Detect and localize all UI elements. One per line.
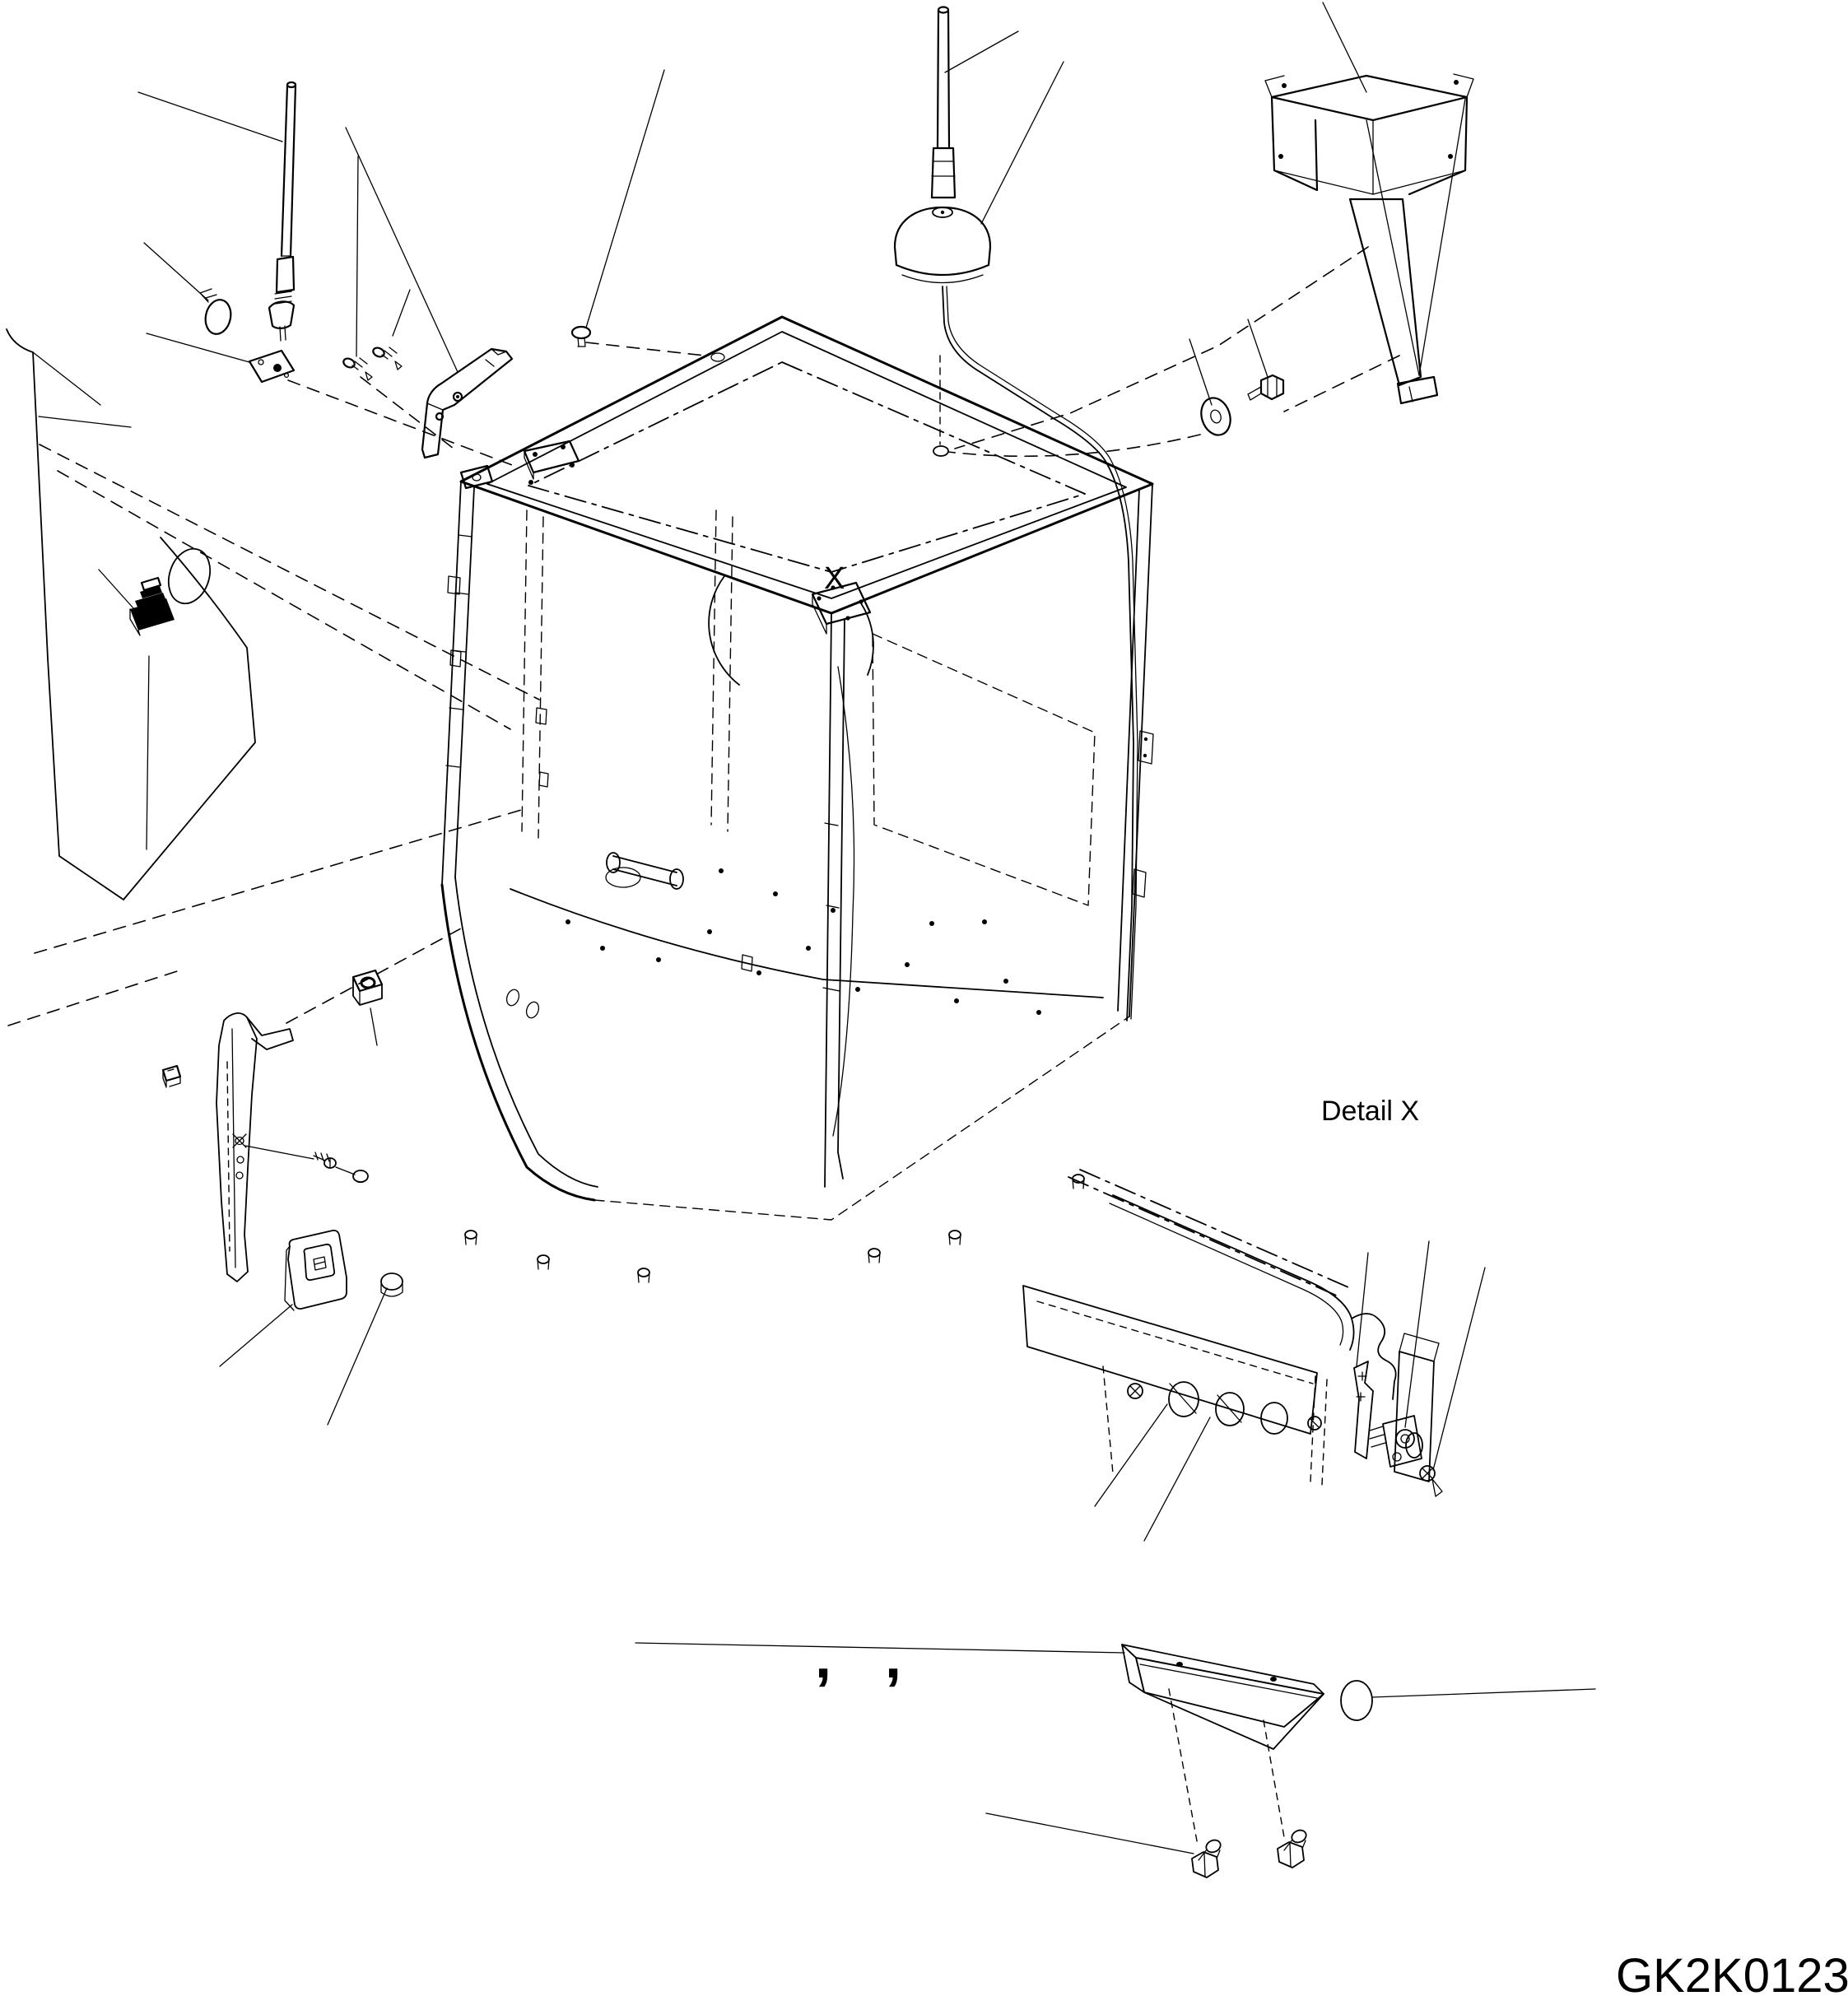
hex-bolt-icon	[1278, 1828, 1308, 1868]
headliner-panel-icon	[7, 329, 539, 900]
separator-comma: ,	[815, 1625, 831, 1691]
parts-diagram-page: X	[0, 0, 1848, 1996]
antenna-cable	[943, 286, 1138, 1021]
tapping-screw-icon	[342, 347, 402, 380]
lamp-bracket-icon	[1354, 1253, 1373, 1459]
whip-antenna-assembly-icon	[138, 70, 705, 468]
cab-frame-drawing: X	[442, 317, 1153, 1282]
armrest-cover-icon	[1122, 1645, 1324, 1749]
harness-connector-icon	[130, 578, 175, 635]
antenna-mount-plate-icon	[249, 351, 294, 382]
buzzer-box-icon	[353, 970, 382, 1045]
parts-diagram-canvas: X	[0, 0, 1848, 1996]
detail-x-marker: X	[824, 561, 845, 596]
hex-bolt-icon	[1192, 1838, 1222, 1877]
roof-plate-left-icon	[524, 441, 579, 485]
round-cap-icon	[1341, 1681, 1372, 1720]
clip-nut-icon	[163, 1066, 180, 1087]
rocker-switch-icon	[220, 1231, 347, 1366]
push-plug-icon	[572, 327, 590, 347]
cab-mount-feet	[465, 1175, 1084, 1282]
antenna-clamp-icon	[200, 289, 234, 337]
detail-x-inset	[635, 1170, 1595, 1877]
gps-antenna-assembly-icon	[895, 7, 1138, 1021]
round-button-icon	[328, 1273, 403, 1425]
corner-bracket-icon	[422, 349, 512, 458]
support-bracket-icon	[955, 2, 1473, 449]
floor-bolt-holes	[566, 868, 1041, 1015]
trim-screw-icon	[314, 1152, 336, 1168]
hole-plug-icon	[353, 1170, 368, 1183]
separator-comma: ,	[885, 1625, 901, 1691]
detail-caption: Detail X	[1321, 1096, 1419, 1127]
figure-code: GK2K0123	[1616, 1949, 1848, 1996]
lower-left-parts	[8, 808, 527, 1425]
